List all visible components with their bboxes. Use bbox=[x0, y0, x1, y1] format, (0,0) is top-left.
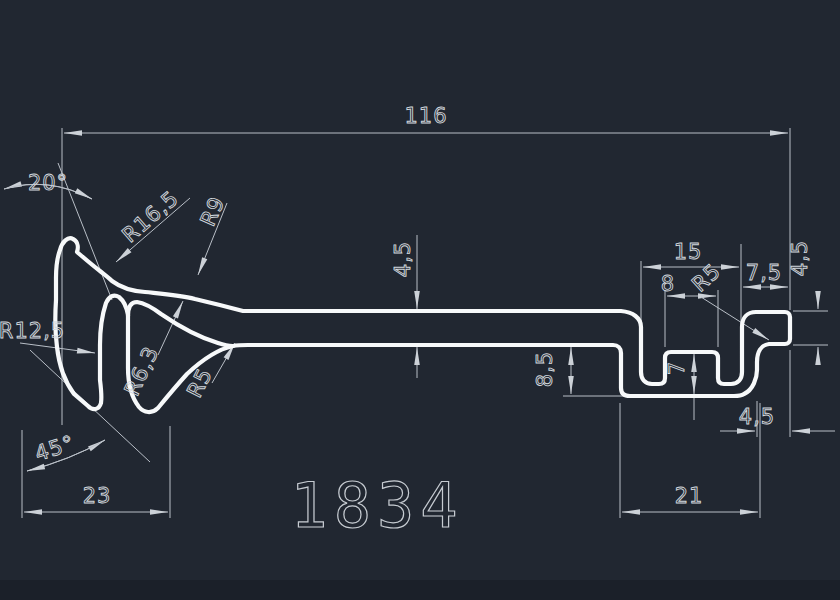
dim-step-depth: 8,5 bbox=[533, 351, 557, 387]
cad-canvas: 116 20° 45° 23 R16,5 R9 R12,5 R6,3 R5 4,… bbox=[0, 0, 840, 600]
dim-channel-outer-width: 21 bbox=[675, 484, 704, 508]
dim-left-hook-width: 23 bbox=[83, 484, 112, 508]
dim-tab-width: 8 bbox=[661, 272, 675, 296]
dim-slot-opening: 15 bbox=[674, 240, 703, 264]
dim-right-flange-height: 4,5 bbox=[788, 240, 812, 276]
part-number: 1834 bbox=[290, 469, 463, 542]
technical-drawing: 116 20° 45° 23 R16,5 R9 R12,5 R6,3 R5 4,… bbox=[0, 0, 840, 600]
dim-total-width: 116 bbox=[404, 104, 447, 128]
dim-strip-thickness: 4,5 bbox=[391, 241, 415, 277]
dim-top-angle: 20° bbox=[28, 171, 68, 195]
radius-claw-inner: R12,5 bbox=[0, 319, 65, 343]
dim-right-flange-offset: 7,5 bbox=[746, 261, 782, 285]
dim-right-flange-overhang: 4,5 bbox=[739, 405, 775, 429]
dim-tab-height: 7 bbox=[665, 361, 689, 375]
bottom-bar bbox=[0, 580, 840, 600]
